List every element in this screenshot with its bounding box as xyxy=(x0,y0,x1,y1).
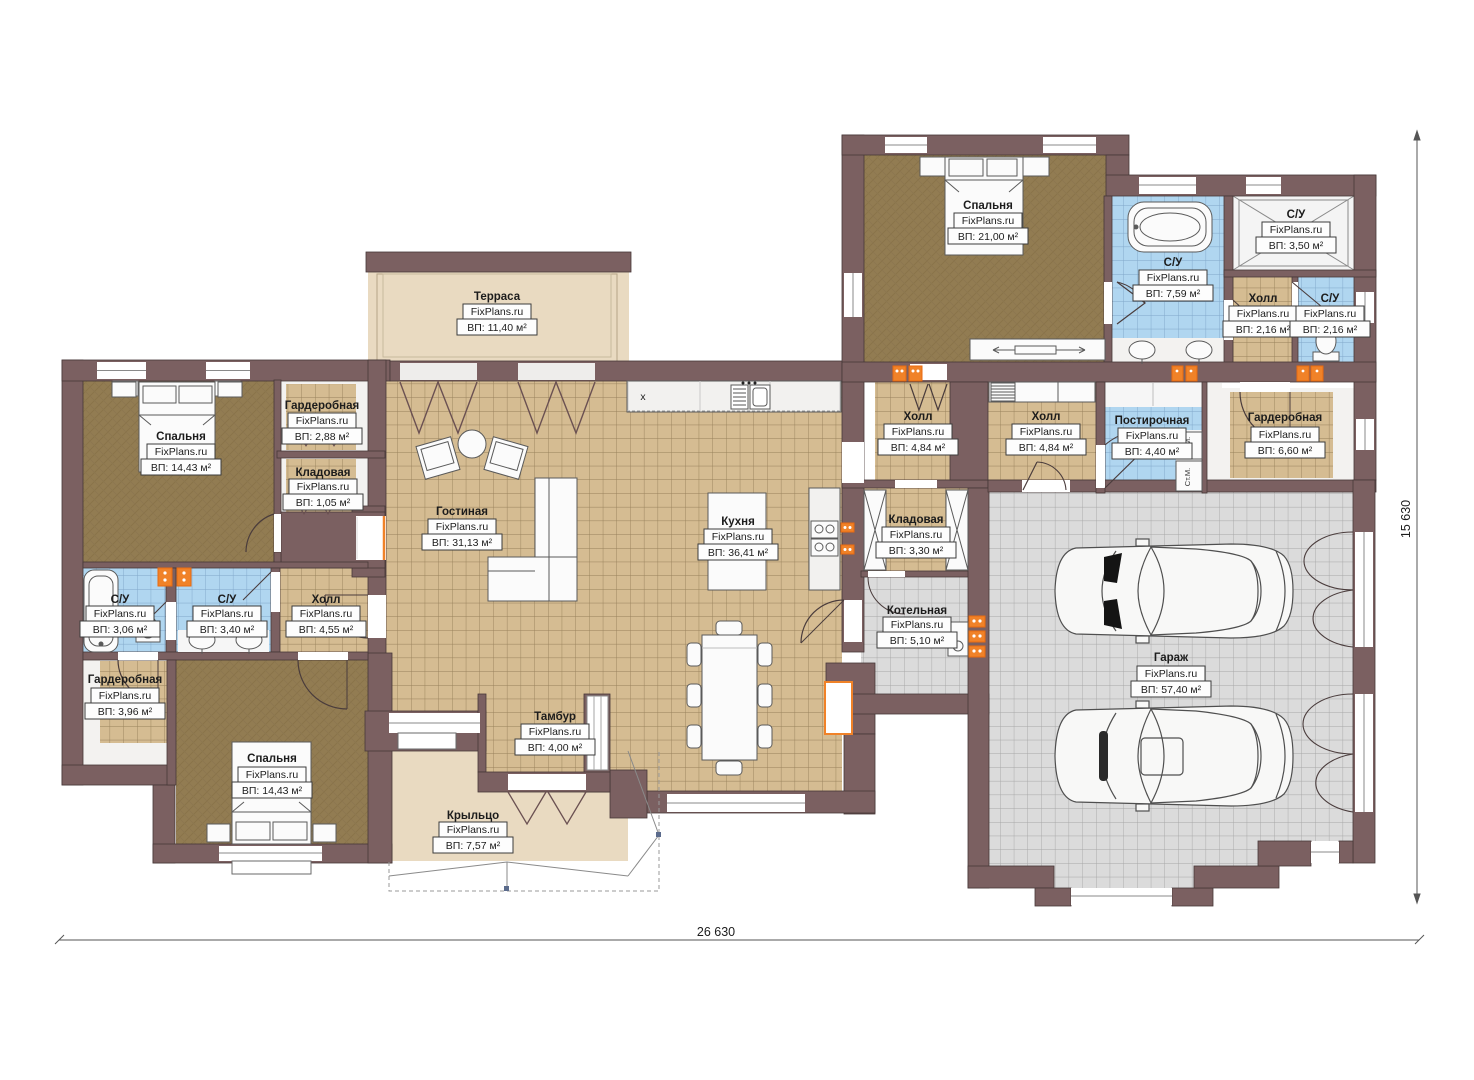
svg-text:FixPlans.ru: FixPlans.ru xyxy=(890,529,943,541)
svg-text:ВП: 3,96 м²: ВП: 3,96 м² xyxy=(98,706,153,718)
svg-text:FixPlans.ru: FixPlans.ru xyxy=(962,215,1015,227)
svg-text:ВП: 7,59 м²: ВП: 7,59 м² xyxy=(1146,288,1201,300)
svg-text:FixPlans.ru: FixPlans.ru xyxy=(300,608,353,620)
svg-text:ВП: 2,16 м²: ВП: 2,16 м² xyxy=(1236,324,1291,336)
svg-text:ВП: 1,05 м²: ВП: 1,05 м² xyxy=(296,497,351,509)
svg-text:Спальня: Спальня xyxy=(247,753,297,765)
svg-text:FixPlans.ru: FixPlans.ru xyxy=(296,415,349,427)
svg-text:FixPlans.ru: FixPlans.ru xyxy=(447,824,500,836)
svg-text:FixPlans.ru: FixPlans.ru xyxy=(1270,224,1323,236)
svg-text:ВП: 3,40 м²: ВП: 3,40 м² xyxy=(200,624,255,636)
svg-text:ВП: 14,43 м²: ВП: 14,43 м² xyxy=(151,462,212,474)
svg-text:ВП: 2,88 м²: ВП: 2,88 м² xyxy=(295,431,350,443)
svg-text:Терраса: Терраса xyxy=(474,291,521,303)
svg-text:ВП: 4,84 м²: ВП: 4,84 м² xyxy=(891,442,946,454)
svg-text:Постирочная: Постирочная xyxy=(1115,415,1190,427)
svg-text:Гардеробная: Гардеробная xyxy=(285,400,359,412)
svg-text:FixPlans.ru: FixPlans.ru xyxy=(1304,308,1357,320)
svg-text:x: x xyxy=(640,391,646,403)
svg-text:FixPlans.ru: FixPlans.ru xyxy=(529,726,582,738)
svg-text:ВП: 21,00 м²: ВП: 21,00 м² xyxy=(958,231,1019,243)
svg-text:Холл: Холл xyxy=(1249,293,1278,305)
svg-text:С/У: С/У xyxy=(1321,293,1341,305)
svg-text:С/У: С/У xyxy=(1287,209,1307,221)
svg-text:FixPlans.ru: FixPlans.ru xyxy=(1147,272,1200,284)
svg-text:Кладовая: Кладовая xyxy=(888,514,943,526)
svg-text:FixPlans.ru: FixPlans.ru xyxy=(1020,426,1073,438)
svg-text:ВП: 11,40 м²: ВП: 11,40 м² xyxy=(467,322,527,334)
svg-text:Тамбур: Тамбур xyxy=(534,711,576,723)
svg-text:ВП: 36,41 м²: ВП: 36,41 м² xyxy=(708,547,769,559)
svg-text:FixPlans.ru: FixPlans.ru xyxy=(155,446,208,458)
svg-text:С/У: С/У xyxy=(218,594,238,606)
svg-text:ВП: 7,57 м²: ВП: 7,57 м² xyxy=(446,840,501,852)
svg-text:Кухня: Кухня xyxy=(721,516,755,528)
svg-text:FixPlans.ru: FixPlans.ru xyxy=(892,426,945,438)
svg-text:С/У: С/У xyxy=(1164,257,1184,269)
svg-text:С/У: С/У xyxy=(111,594,131,606)
svg-text:ВП: 4,84 м²: ВП: 4,84 м² xyxy=(1019,442,1074,454)
svg-text:Холл: Холл xyxy=(904,411,933,423)
svg-text:Спальня: Спальня xyxy=(156,431,206,443)
svg-text:Котельная: Котельная xyxy=(887,605,947,617)
svg-text:FixPlans.ru: FixPlans.ru xyxy=(1237,308,1290,320)
svg-text:ВП: 3,06 м²: ВП: 3,06 м² xyxy=(93,624,148,636)
svg-text:FixPlans.ru: FixPlans.ru xyxy=(297,481,350,493)
svg-text:Спальня: Спальня xyxy=(963,200,1013,212)
svg-text:Гостиная: Гостиная xyxy=(436,506,488,518)
svg-text:FixPlans.ru: FixPlans.ru xyxy=(99,690,152,702)
svg-text:ВП: 5,10 м²: ВП: 5,10 м² xyxy=(890,635,945,647)
svg-text:FixPlans.ru: FixPlans.ru xyxy=(1145,668,1198,680)
svg-text:FixPlans.ru: FixPlans.ru xyxy=(1259,429,1312,441)
svg-text:Холл: Холл xyxy=(312,594,341,606)
svg-text:ВП: 4,40 м²: ВП: 4,40 м² xyxy=(1125,446,1180,458)
svg-text:Крыльцо: Крыльцо xyxy=(447,810,499,822)
svg-text:ВП: 14,43 м²: ВП: 14,43 м² xyxy=(242,785,303,797)
svg-text:FixPlans.ru: FixPlans.ru xyxy=(1126,430,1179,442)
svg-text:ВП: 3,30 м²: ВП: 3,30 м² xyxy=(889,545,944,557)
svg-text:ВП: 4,55 м²: ВП: 4,55 м² xyxy=(299,624,354,636)
svg-text:15 630: 15 630 xyxy=(1399,500,1413,538)
svg-text:FixPlans.ru: FixPlans.ru xyxy=(94,608,147,620)
svg-text:26 630: 26 630 xyxy=(697,925,735,939)
svg-text:Гардеробная: Гардеробная xyxy=(1248,412,1322,424)
svg-text:Гардеробная: Гардеробная xyxy=(88,674,162,686)
svg-text:FixPlans.ru: FixPlans.ru xyxy=(201,608,254,620)
svg-text:FixPlans.ru: FixPlans.ru xyxy=(712,531,765,543)
svg-text:Кладовая: Кладовая xyxy=(295,467,350,479)
svg-text:FixPlans.ru: FixPlans.ru xyxy=(436,521,489,533)
svg-text:ВП: 2,16 м²: ВП: 2,16 м² xyxy=(1303,324,1358,336)
svg-text:Холл: Холл xyxy=(1032,411,1061,423)
svg-text:ВП: 4,00 м²: ВП: 4,00 м² xyxy=(528,742,583,754)
svg-text:Гараж: Гараж xyxy=(1154,652,1189,664)
svg-text:ВП: 31,13 м²: ВП: 31,13 м² xyxy=(432,537,493,549)
svg-text:FixPlans.ru: FixPlans.ru xyxy=(891,619,944,631)
svg-text:ВП: 3,50 м²: ВП: 3,50 м² xyxy=(1269,240,1324,252)
svg-text:ВП: 6,60 м²: ВП: 6,60 м² xyxy=(1258,445,1313,457)
svg-text:Ст.М.: Ст.М. xyxy=(1183,468,1192,486)
svg-text:FixPlans.ru: FixPlans.ru xyxy=(471,306,524,318)
svg-text:ВП: 57,40 м²: ВП: 57,40 м² xyxy=(1141,684,1202,696)
svg-text:FixPlans.ru: FixPlans.ru xyxy=(246,769,299,781)
